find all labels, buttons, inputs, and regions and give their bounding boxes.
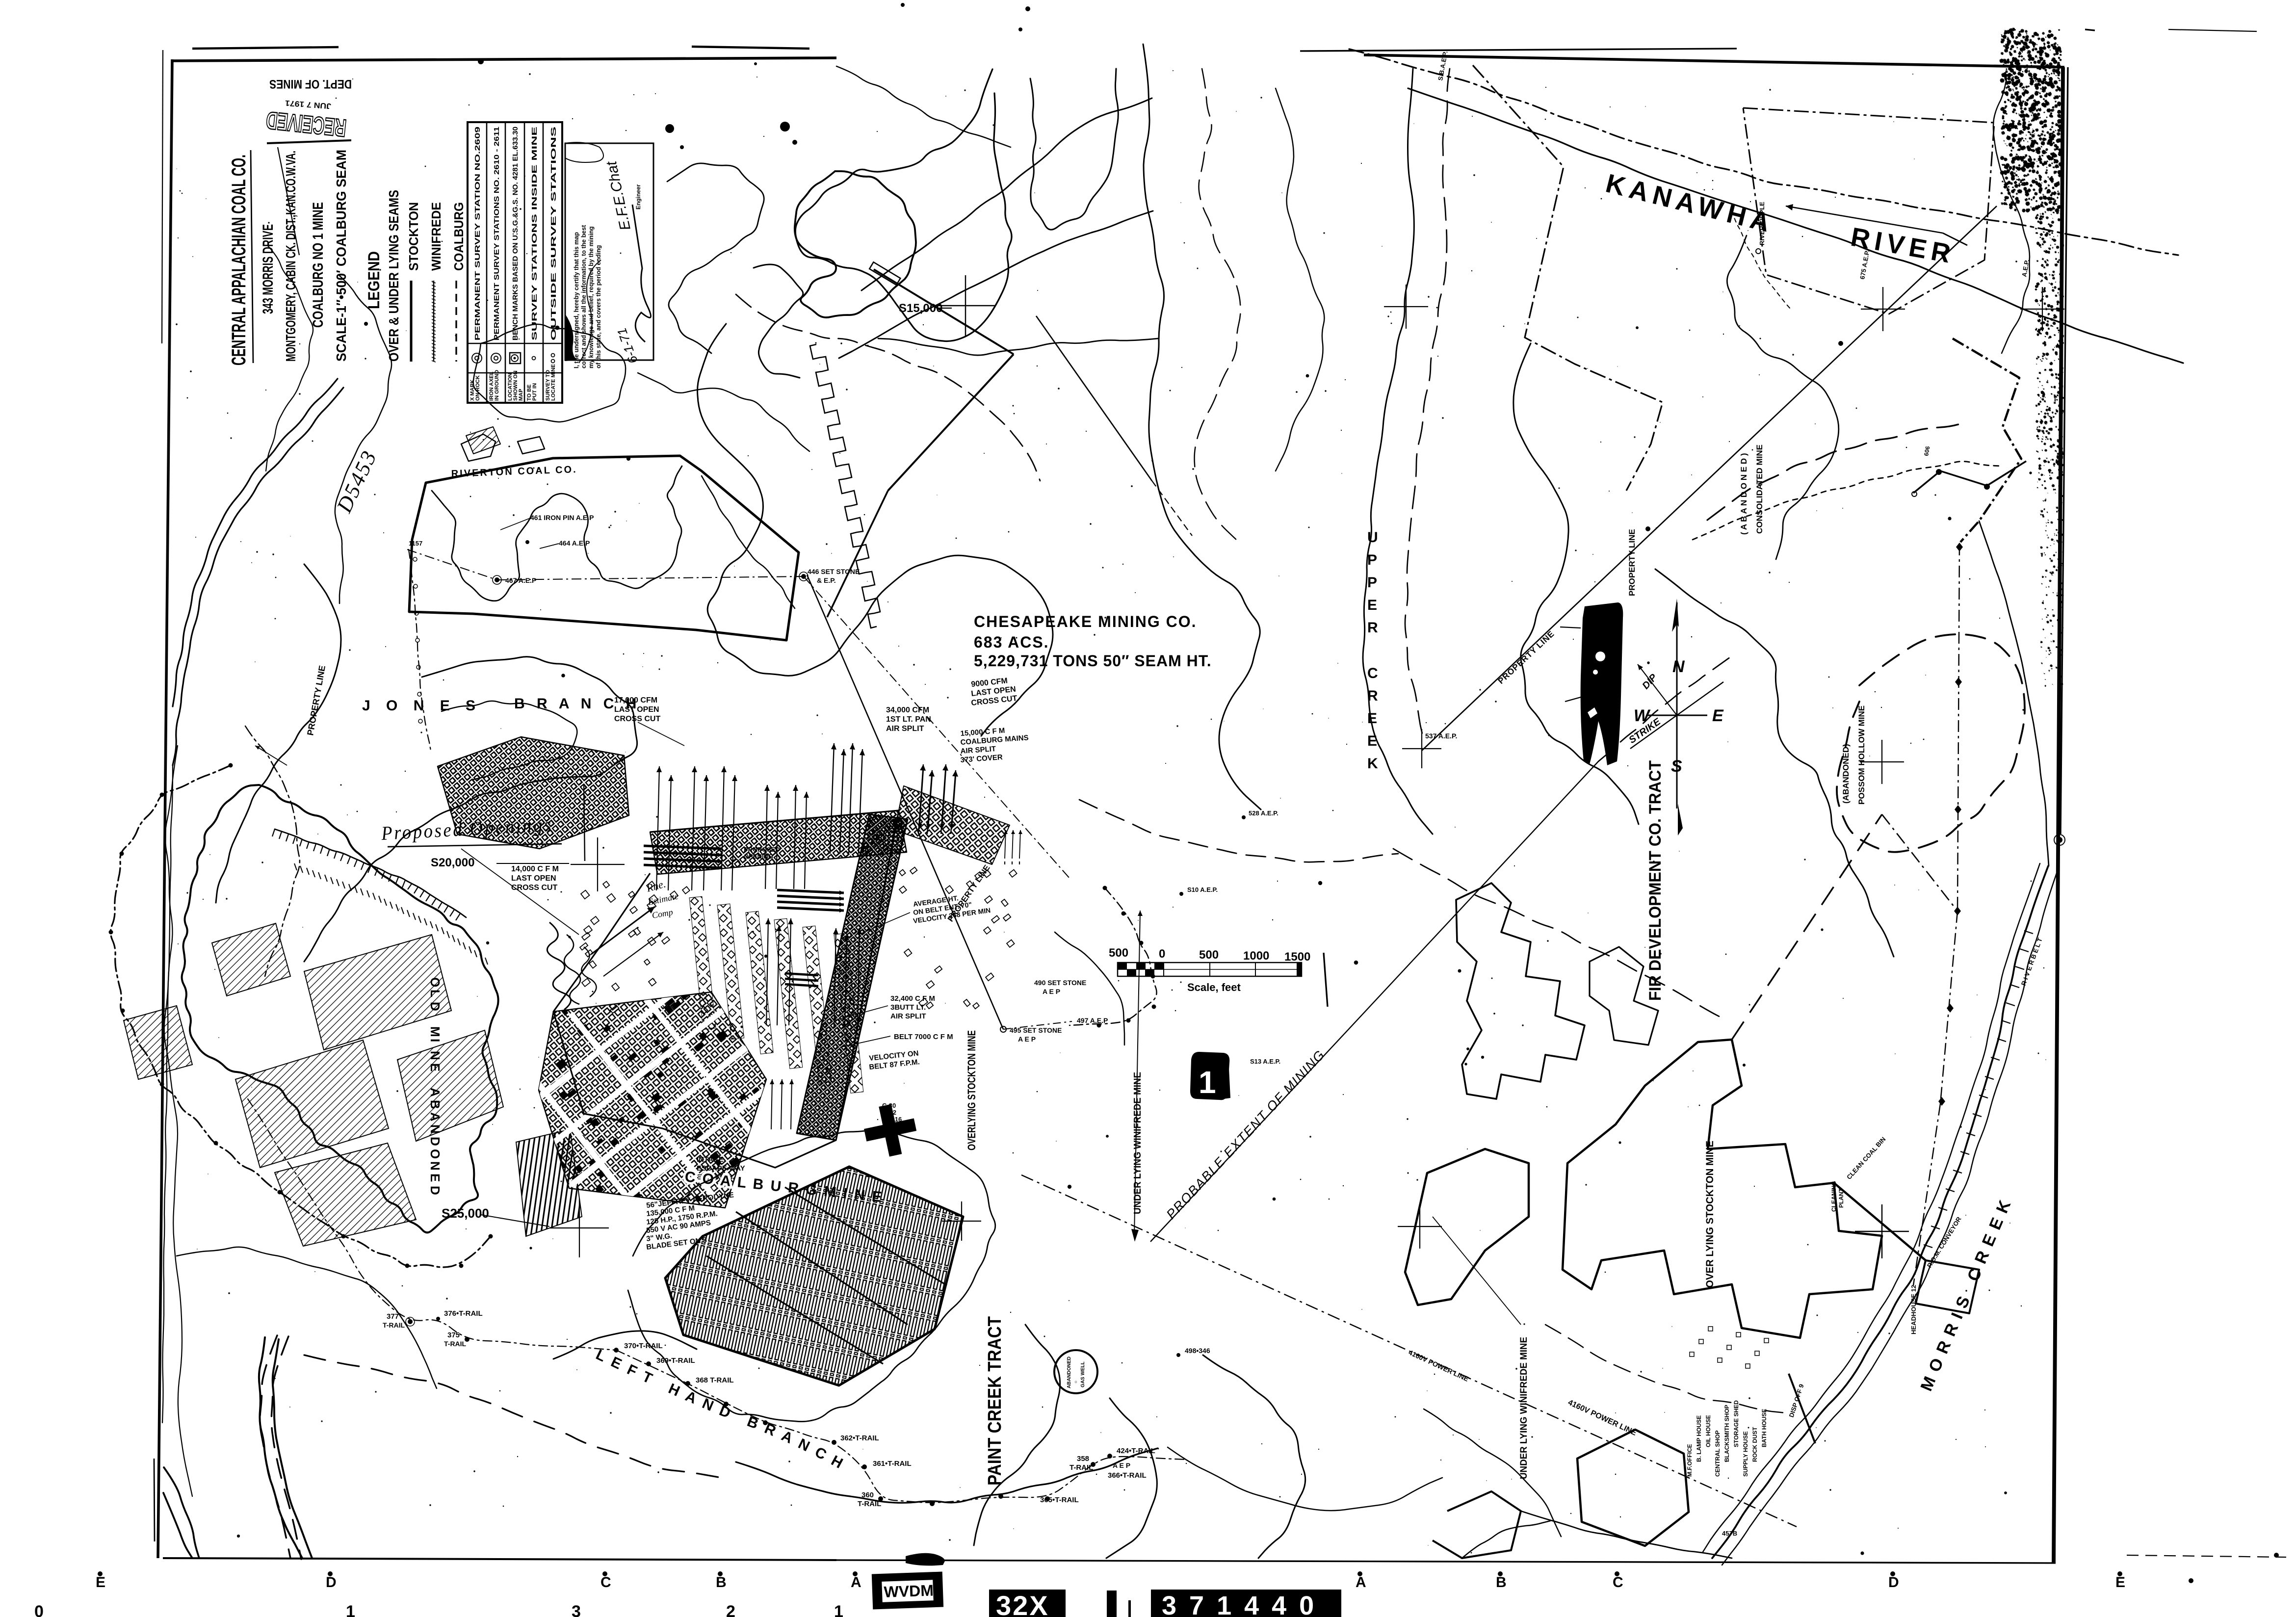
svg-text:SCALE-1″•500′ COALBURG SE: SCALE-1″•500′ COALBURG SEAM	[334, 150, 349, 362]
svg-text:N: N	[428, 1051, 443, 1060]
svg-text:MONTGOMERY, CABIN CK. DIST.,KA: MONTGOMERY, CABIN CK. DIST.,KAN.CO.W.VA.	[283, 151, 298, 362]
svg-text:683 ACS.: 683 ACS.	[974, 633, 1049, 651]
svg-text:N: N	[1672, 657, 1685, 676]
svg-text:P: P	[1367, 574, 1377, 591]
svg-text:498•346: 498•346	[1185, 1347, 1210, 1355]
svg-text:B: B	[428, 1100, 443, 1109]
svg-text:L: L	[428, 990, 443, 997]
svg-text:T-RAIL: T-RAIL	[858, 1500, 881, 1508]
svg-text:34,000 CFM: 34,000 CFM	[886, 706, 929, 714]
svg-text:1ST LT. PAN: 1ST LT. PAN	[886, 715, 931, 724]
svg-text:COALBURG: COALBURG	[451, 202, 466, 271]
svg-text:OVER LYING STOCKTON MINE: OVER LYING STOCKTON MINE	[1704, 1141, 1716, 1288]
svg-text:C: C	[600, 1574, 611, 1591]
svg-text:B. LAMP HOUSE: B. LAMP HOUSE	[1696, 1415, 1702, 1462]
svg-text:A E P: A E P	[1018, 1035, 1036, 1043]
svg-text:1: 1	[346, 1602, 355, 1617]
svg-text:OPENING: OPENING	[744, 853, 773, 860]
svg-text:1500: 1500	[1284, 950, 1310, 964]
svg-text:497 A.E.P: 497 A.E.P	[1077, 1017, 1108, 1024]
svg-text:ABANDONED: ABANDONED	[1067, 1356, 1072, 1388]
svg-text:528 A.E.P.: 528 A.E.P.	[1249, 809, 1278, 817]
svg-text:3BUTT LT.: 3BUTT LT.	[890, 1003, 926, 1012]
svg-text:CHESAPEAKE MINING CO.: CHESAPEAKE MINING CO.	[974, 613, 1197, 630]
svg-text:INTAKE: INTAKE	[697, 1155, 724, 1164]
svg-text:0: 0	[34, 1602, 44, 1617]
svg-text:1157: 1157	[409, 540, 422, 547]
svg-text:2: 2	[726, 1602, 735, 1617]
svg-text:A: A	[1356, 1574, 1366, 1591]
svg-text:A E P: A E P	[1113, 1461, 1130, 1469]
svg-text:D: D	[428, 1186, 443, 1195]
svg-text:D: D	[428, 1137, 443, 1146]
svg-text:POSSOM HOLLOW MINE: POSSOM HOLLOW MINE	[1857, 705, 1866, 805]
svg-text:537 A.E.P.: 537 A.E.P.	[1425, 732, 1457, 740]
svg-text:490 SET STONE: 490 SET STONE	[1034, 979, 1086, 987]
svg-text:370•T-RAIL: 370•T-RAIL	[624, 1342, 663, 1350]
svg-text:T-RAIL: T-RAIL	[444, 1340, 467, 1348]
svg-text:LAST OPEN: LAST OPEN	[614, 705, 659, 714]
svg-text:CENTRAL APPALACHIAN COAL CO.: CENTRAL APPALACHIAN COAL CO.	[228, 155, 250, 365]
svg-text:U: U	[1367, 529, 1378, 546]
svg-text:32,400 C F M: 32,400 C F M	[890, 994, 935, 1003]
svg-text:& E.P.: & E.P.	[817, 576, 836, 584]
svg-text:OUTSIDE SURVEY STATIONS: OUTSIDE SURVEY STATIONS	[549, 127, 558, 340]
svg-text:362•T-RAIL: 362•T-RAIL	[840, 1434, 879, 1442]
svg-text:M: M	[428, 1026, 443, 1037]
svg-text:○: ○	[1073, 1381, 1079, 1383]
svg-text:S13 A.E.P.: S13 A.E.P.	[1250, 1058, 1280, 1065]
svg-text:ROCK DUST: ROCK DUST	[1751, 1427, 1758, 1462]
svg-text:E: E	[2115, 1574, 2125, 1591]
svg-text:(ABANDONED): (ABANDONED)	[1841, 744, 1851, 804]
svg-text:HEADHOUSE 12: HEADHOUSE 12	[1910, 1285, 1917, 1334]
svg-text:UNDER LYING WINIFREDE MINE: UNDER LYING WINIFREDE MINE	[1519, 1337, 1529, 1479]
svg-text:ON ROCK: ON ROCK	[475, 375, 481, 401]
svg-text:376•T-RAIL: 376•T-RAIL	[444, 1309, 483, 1318]
svg-text:OIL HOUSE: OIL HOUSE	[1705, 1415, 1712, 1447]
svg-text:0: 0	[1159, 947, 1165, 961]
svg-text:WINIFREDE: WINIFREDE	[429, 202, 444, 271]
svg-text:AIR SPLIT: AIR SPLIT	[890, 1012, 926, 1020]
svg-text:E: E	[1367, 710, 1377, 727]
svg-text:B: B	[1496, 1574, 1507, 1591]
svg-text:MAP: MAP	[518, 389, 524, 401]
svg-text:1: 1	[1199, 1065, 1216, 1100]
svg-text:M.F.OFFICE: M.F.OFFICE	[1686, 1444, 1693, 1477]
svg-text:T-RAIL: T-RAIL	[1070, 1463, 1093, 1472]
svg-text:GAS WELL: GAS WELL	[1080, 1361, 1086, 1387]
svg-text:BATH HOUSE: BATH HOUSE	[1761, 1409, 1768, 1447]
svg-text:IN GROUND: IN GROUND	[494, 370, 500, 401]
svg-text:S25,000: S25,000	[442, 1206, 489, 1221]
svg-text:Engineer: Engineer	[635, 184, 642, 209]
svg-text:457B: 457B	[1722, 1530, 1737, 1537]
svg-text:E: E	[1367, 597, 1377, 613]
svg-text:3: 3	[572, 1602, 581, 1617]
svg-text:1000: 1000	[1243, 949, 1269, 963]
svg-text:E: E	[428, 1174, 443, 1182]
svg-text:A: A	[428, 1112, 443, 1121]
svg-text:C-30: C-30	[882, 1102, 896, 1109]
svg-text:424•T-RAIL: 424•T-RAIL	[1117, 1447, 1155, 1455]
svg-text:1: 1	[834, 1602, 843, 1617]
svg-text:K: K	[1367, 756, 1378, 772]
svg-text:OVER & UNDER LYING SEAMS: OVER & UNDER LYING SEAMS	[386, 190, 401, 362]
svg-text:my knowledge and belief, requi: my knowledge and belief, required by the…	[588, 226, 595, 368]
svg-text:UNDER LYING WINIFREDE MINE: UNDER LYING WINIFREDE MINE	[1132, 1072, 1143, 1214]
svg-text:BELT 7000 C F M: BELT 7000 C F M	[894, 1033, 953, 1041]
svg-text:366•T-RAIL: 366•T-RAIL	[1108, 1471, 1147, 1480]
svg-text:S10 A.E.P.: S10 A.E.P.	[1187, 886, 1218, 893]
svg-text:461 IRON PIN A.E.P: 461 IRON PIN A.E.P	[530, 514, 594, 522]
svg-text:PERMANENT SURVEY STATIONS NO.: PERMANENT SURVEY STATIONS NO. 2610 - 261…	[493, 127, 501, 340]
svg-text:360: 360	[861, 1491, 874, 1499]
svg-text:S20,000: S20,000	[431, 856, 474, 869]
svg-text:J O N E S: J O N E S	[362, 698, 481, 714]
svg-text:K-2: K-2	[886, 1109, 896, 1116]
svg-text:LOCATE MINE: LOCATE MINE	[550, 364, 556, 401]
svg-text:369•T-RAIL: 369•T-RAIL	[656, 1356, 695, 1365]
svg-text:E: E	[96, 1574, 105, 1591]
svg-text:BLACKSMITH SHOP: BLACKSMITH SHOP	[1723, 1405, 1730, 1462]
svg-text:377: 377	[387, 1312, 399, 1321]
svg-text:E: E	[1712, 706, 1724, 725]
svg-text:of this state, and covers the: of this state, and covers the period end…	[595, 245, 602, 368]
svg-text:CENTRAL SHOP: CENTRAL SHOP	[1714, 1431, 1721, 1477]
svg-text:E: E	[1367, 733, 1377, 749]
svg-text:C: C	[1367, 665, 1378, 681]
svg-text:I, the undersigned, hereby cer: I, the undersigned, hereby certify that …	[573, 232, 580, 368]
svg-text:correct and shows all the info: correct and shows all the information, t…	[580, 225, 587, 368]
svg-text:LAST OPEN: LAST OPEN	[511, 874, 556, 883]
svg-text:( A B A N D O N E D ): ( A B A N D O N E D )	[1739, 453, 1748, 535]
svg-text:O: O	[428, 1149, 443, 1159]
svg-text:446 SET STONE: 446 SET STONE	[808, 568, 860, 575]
svg-text:PUT IN: PUT IN	[532, 383, 538, 401]
svg-text:Scale, feet: Scale, feet	[1187, 981, 1241, 993]
svg-text:A: A	[851, 1574, 861, 1591]
svg-text:T-RAIL: T-RAIL	[383, 1321, 405, 1329]
svg-text:464 A.E.P: 464 A.E.P	[559, 539, 590, 547]
svg-text:CONSOLIDATED MINE: CONSOLIDATED MINE	[1755, 444, 1764, 534]
svg-text:D: D	[1888, 1574, 1899, 1591]
svg-text:FIR DEVELOPMENT CO. TRACT: FIR DEVELOPMENT CO. TRACT	[1646, 760, 1665, 1001]
svg-text:PERMANENT SURVEY STATION NO.2: PERMANENT SURVEY STATION NO.2609	[473, 127, 482, 340]
svg-text:32X: 32X	[996, 1590, 1049, 1617]
svg-text:375: 375	[447, 1331, 460, 1339]
svg-text:I: I	[428, 1039, 443, 1042]
svg-text:E: E	[428, 1063, 443, 1071]
svg-text:PAINT CREEK TRACT: PAINT CREEK TRACT	[985, 1316, 1005, 1486]
svg-text:P: P	[1367, 552, 1377, 568]
svg-text:STORAGE SHED: STORAGE SHED	[1733, 1400, 1740, 1447]
svg-text:N: N	[428, 1124, 443, 1134]
svg-text:B: B	[716, 1574, 727, 1591]
svg-text:RIVER TIPPLE: RIVER TIPPLE	[1758, 202, 1766, 245]
svg-text:DEPT. OF MINES: DEPT. OF MINES	[269, 77, 352, 91]
svg-text:495 SET STONE: 495 SET STONE	[1010, 1026, 1062, 1034]
svg-text:A E P: A E P	[1043, 988, 1060, 995]
svg-text:500: 500	[1199, 948, 1219, 962]
svg-text:AIR SPLIT: AIR SPLIT	[886, 725, 924, 733]
svg-text:N: N	[428, 1161, 443, 1171]
svg-text:467 A.E.P: 467 A.E.P	[505, 576, 536, 584]
svg-text:5,229,731 TONS 50″ SEAM: 5,229,731 TONS 50″ SEAM HT.	[974, 652, 1212, 670]
svg-text:O: O	[428, 977, 443, 987]
svg-text:STOCKTON: STOCKTON	[406, 202, 421, 271]
svg-text:C: C	[1613, 1574, 1623, 1591]
svg-text:D: D	[428, 1002, 443, 1011]
svg-text:358: 358	[1077, 1455, 1089, 1463]
svg-text:WVDM: WVDM	[884, 1581, 934, 1601]
svg-text:C-16: C-16	[888, 1116, 902, 1123]
svg-text:BENCH MARKS BASED ON U.S.G.&G.: BENCH MARKS BASED ON U.S.G.&G.S. NO. 428…	[511, 127, 520, 340]
svg-text:S15,000: S15,000	[899, 302, 942, 315]
svg-text:SUPPLY HOUSE: SUPPLY HOUSE	[1742, 1431, 1749, 1477]
svg-text:CROSS CUT: CROSS CUT	[614, 715, 660, 723]
svg-text:S: S	[1671, 757, 1682, 776]
svg-text:365•T-RAIL: 365•T-RAIL	[1040, 1496, 1079, 1504]
svg-text:R: R	[1367, 620, 1378, 636]
svg-text:COALBURG NO 1 MINE: COALBURG NO 1 MINE	[310, 202, 326, 328]
svg-text:14,000 C F M: 14,000 C F M	[511, 865, 559, 873]
svg-text:371440: 371440	[1162, 1591, 1327, 1617]
svg-text:CROSS CUT: CROSS CUT	[511, 884, 557, 892]
svg-text:500: 500	[1109, 946, 1128, 960]
svg-text:LEGEND: LEGEND	[365, 251, 383, 309]
svg-text:D: D	[326, 1574, 337, 1591]
svg-text:R: R	[1367, 688, 1378, 704]
svg-text:343 MORRIS DRIVE: 343 MORRIS DRIVE	[260, 224, 276, 314]
svg-text:SURVEY STATIONS INSIDE MINE: SURVEY STATIONS INSIDE MINE	[530, 127, 539, 340]
svg-text:PROPOSED: PROPOSED	[744, 846, 780, 853]
svg-text:PROPERTY LINE: PROPERTY LINE	[1627, 529, 1637, 596]
svg-text:OVERLYING STOCKTON MINE: OVERLYING STOCKTON MINE	[965, 1030, 978, 1150]
svg-text:17,000 CFM: 17,000 CFM	[614, 696, 657, 704]
svg-text:361•T-RAIL: 361•T-RAIL	[873, 1460, 912, 1468]
svg-text:A: A	[428, 1088, 443, 1097]
svg-text:368 T-RAIL: 368 T-RAIL	[696, 1376, 734, 1384]
